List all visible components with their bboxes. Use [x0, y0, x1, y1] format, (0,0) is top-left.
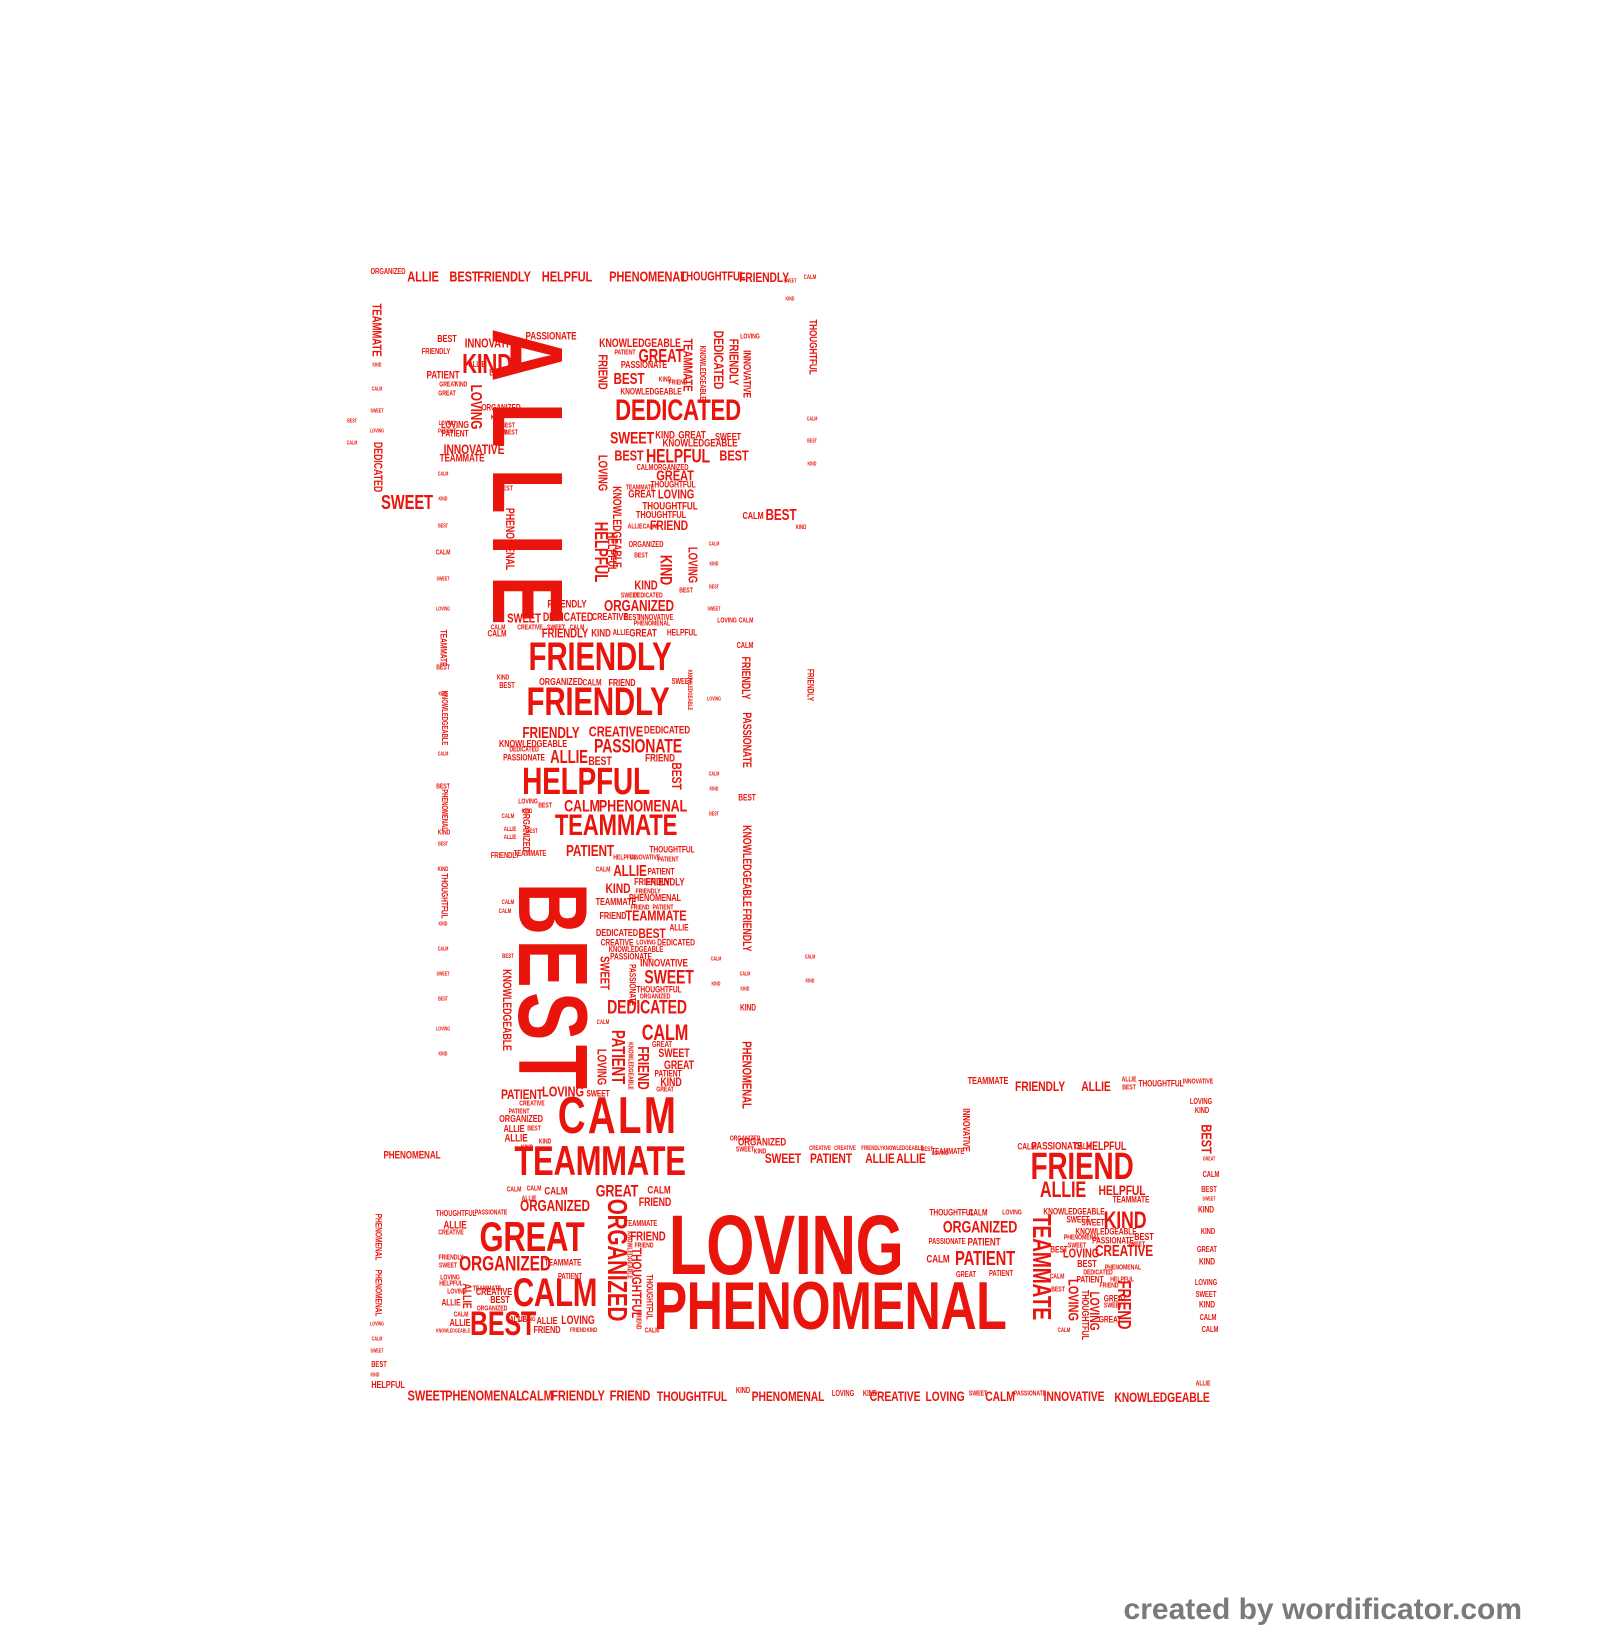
word: SWEET — [765, 1151, 801, 1165]
word: BEST — [679, 588, 693, 595]
word: ALLIE — [865, 1151, 894, 1165]
word: DEDICATED — [607, 999, 687, 1018]
word: INNOVATIVE — [630, 855, 660, 862]
word: KIND — [371, 1374, 380, 1379]
word: SWEET — [371, 1350, 384, 1355]
word: INNOVATIVE — [960, 1108, 970, 1151]
word: LOVING — [439, 421, 456, 427]
word: HELPFUL — [522, 763, 650, 801]
word: KIND — [1199, 1258, 1215, 1267]
word: THOUGHTFUL — [440, 873, 449, 918]
word: KIND — [741, 988, 750, 993]
word: FRIENDLY — [527, 682, 670, 722]
word: PATIENT — [810, 1151, 852, 1165]
word: SWEET — [708, 608, 721, 613]
word: CALM — [597, 1020, 610, 1026]
word: LOVING — [436, 608, 450, 613]
word: PATIENT — [438, 429, 456, 435]
word: GREAT — [1197, 1246, 1217, 1254]
word: CALM — [711, 958, 722, 963]
word: KIND — [808, 463, 817, 468]
word: BEST — [347, 420, 357, 425]
word: TEAMMATE — [545, 1259, 582, 1268]
word: THOUGHTFUL — [807, 319, 818, 374]
word: GREAT — [956, 1271, 976, 1279]
word: BEST — [449, 270, 478, 285]
word: TEAMMATE — [1029, 1214, 1055, 1320]
word: DEDICATED — [712, 331, 726, 390]
word: CREATIVE — [1095, 1244, 1153, 1260]
word: PHENOMENAL — [752, 1389, 825, 1403]
word: FRIEND — [597, 354, 610, 389]
word: KIND — [1195, 1107, 1209, 1115]
word: DEDICATED — [644, 726, 690, 737]
word: BEST — [504, 430, 518, 437]
word: BEST — [807, 440, 817, 445]
word: LOVING — [717, 618, 737, 625]
word: FRIEND — [570, 1328, 586, 1334]
word: ALLIE — [504, 835, 517, 841]
word: PASSIONATE — [741, 712, 753, 768]
word: HELPFUL — [606, 532, 618, 572]
word: FRIEND — [630, 1230, 665, 1243]
word: KIND — [373, 364, 382, 369]
word: LOVING — [1195, 1279, 1217, 1287]
word: PATIENT — [967, 1238, 1000, 1249]
word: BEST — [436, 665, 450, 672]
word: THOUGHTFUL — [657, 1389, 727, 1403]
word: ALLIE — [504, 827, 517, 833]
word: FRIEND — [635, 1243, 654, 1250]
word: BEST — [738, 794, 756, 803]
word: ALLIE — [670, 924, 689, 933]
word: CALM — [438, 753, 449, 758]
word: ALLIE — [1122, 1077, 1137, 1084]
word: LOVING — [1063, 1247, 1099, 1260]
word: KIND — [786, 298, 795, 303]
word: ALLIE — [628, 524, 643, 531]
word: THOUGHTFUL — [649, 846, 694, 855]
word: CALM — [521, 1389, 553, 1404]
word: PHENOMENAL — [654, 1272, 1007, 1340]
word: CREATIVE — [809, 1146, 831, 1152]
word: CALM — [1200, 1314, 1217, 1322]
word: KIND — [796, 525, 807, 531]
word: CALM — [737, 642, 754, 650]
word: DEDICATED — [543, 611, 593, 623]
word: FRIENDLY — [739, 270, 789, 284]
word: PATIENT — [647, 868, 674, 877]
word: FRIEND — [1115, 1281, 1133, 1330]
word: FRIENDLY — [806, 669, 815, 701]
word: DEDICATED — [372, 442, 384, 492]
word: FRIENDLY — [422, 348, 451, 356]
word: ORGANIZED — [371, 268, 406, 276]
word: KIND — [438, 830, 450, 837]
word: KNOWLEDGEABLE — [686, 670, 692, 711]
word: ALLIE — [442, 1299, 461, 1308]
word: CREATIVE — [592, 613, 628, 623]
word: KNOWLEDGEABLE — [883, 1146, 924, 1152]
word: FRIENDLY — [547, 600, 586, 611]
word: CALM — [502, 900, 515, 906]
word-art-canvas: ORGANIZEDALLIEBESTFRIENDLYHELPFULPHENOME… — [0, 0, 1600, 1640]
word: BEST — [1201, 1186, 1217, 1194]
word: KIND — [710, 563, 719, 568]
word: TEAMMATE — [514, 850, 547, 858]
word: ORGANIZED — [481, 404, 520, 413]
word: FRIENDLY — [740, 657, 752, 700]
word: CALM — [438, 473, 449, 478]
word: SWEET — [437, 578, 450, 583]
word: BEST — [538, 803, 552, 810]
word: FRIENDLY — [438, 1255, 463, 1262]
word: PASSIONATE — [1014, 1391, 1046, 1398]
word: CALM — [507, 1187, 522, 1194]
word: CREATIVE — [834, 1146, 856, 1152]
word: LOVING — [436, 1028, 450, 1033]
word: CALM — [527, 1186, 542, 1193]
word: PASSIONATE — [621, 361, 667, 371]
word: HELPFUL — [371, 1381, 405, 1391]
word: LOVING — [370, 1323, 384, 1328]
word: KNOWLEDGEABLE — [698, 346, 706, 400]
word: INNOVATIVE — [1044, 1389, 1105, 1403]
word: TEAMMATE — [555, 811, 677, 841]
word: BEST — [470, 1307, 536, 1341]
word: BEST — [1199, 1124, 1214, 1153]
word: TEAMMATE — [1113, 1196, 1150, 1205]
word: TEAMMATE — [514, 1140, 685, 1182]
word: FRIENDLY — [728, 339, 741, 385]
word: FRIENDLY — [477, 270, 531, 285]
word: KNOWLEDGEABLE — [440, 691, 448, 745]
word: BEST — [499, 682, 515, 690]
word: LOVING — [597, 455, 610, 491]
word: PHENOMENAL — [634, 621, 670, 628]
word: KIND — [439, 923, 448, 928]
word: BEST — [709, 586, 719, 591]
word: PATIENT — [989, 1270, 1013, 1278]
word: BEST — [1122, 1085, 1136, 1092]
word: ALLIE — [1040, 1179, 1086, 1201]
word: FRIENDLY — [645, 878, 684, 889]
word: FRIEND — [639, 1196, 672, 1208]
word: SWEET — [408, 1389, 447, 1404]
word: CALM — [804, 275, 817, 281]
word: HELPFUL — [542, 270, 592, 285]
word: CALM — [926, 1255, 949, 1266]
word: CREATIVE — [517, 625, 542, 632]
word: CALM — [969, 1209, 988, 1218]
word: PATIENT — [657, 857, 678, 864]
word: TEAMMATE — [968, 1077, 1009, 1087]
word: DEDICATED — [615, 396, 741, 426]
word: FRIENDLY — [551, 1389, 605, 1404]
word: CALM — [805, 956, 816, 961]
word: KNOWLEDGEABLE — [436, 1330, 470, 1335]
word: BEST — [438, 998, 448, 1003]
word: CREATIVE — [519, 1101, 544, 1108]
word: PHENOMENAL — [609, 270, 687, 285]
word: BEST — [719, 449, 748, 464]
word: BEST — [438, 843, 448, 848]
word: KIND — [658, 555, 675, 585]
word: LOVING — [658, 488, 694, 501]
word: BEST — [634, 553, 648, 560]
word: TEAMMATE — [440, 454, 485, 465]
word: LOVING — [519, 1317, 536, 1323]
word: GREAT — [596, 1183, 638, 1200]
word: CALM — [347, 442, 358, 447]
word: LOVING — [1190, 1098, 1212, 1106]
word: SWEET — [736, 1147, 754, 1154]
word: BEST — [504, 883, 602, 1094]
word: KIND — [439, 693, 448, 698]
word: KIND — [438, 867, 449, 873]
word: INNOVATIVE — [1183, 1079, 1213, 1086]
word: CALM — [637, 464, 654, 472]
word: CALM — [1202, 1326, 1219, 1334]
word: BEST — [527, 1126, 541, 1133]
word: FRIEND — [634, 1046, 650, 1089]
word: PATIENT — [614, 350, 635, 357]
word: PATIENT — [426, 371, 459, 382]
word: PHENOMENAL — [383, 1151, 440, 1162]
word: CREATIVE — [438, 1230, 463, 1237]
word: KIND — [491, 415, 503, 422]
word: CALM — [488, 630, 507, 639]
word: SWEET — [599, 956, 612, 990]
word: SWEET — [610, 430, 654, 447]
word: LOVING — [832, 1390, 854, 1398]
word: CREATIVE — [870, 1389, 921, 1403]
word: KIND — [1201, 1228, 1215, 1236]
word: CALM — [544, 1187, 567, 1198]
word: KIND — [1198, 1206, 1214, 1215]
word: CALM — [739, 618, 754, 625]
word: LOVING — [561, 1314, 595, 1326]
word: PATIENT — [609, 1030, 627, 1084]
word: BEST — [502, 954, 514, 960]
word: THOUGHTFUL — [680, 270, 745, 283]
word: BEST — [501, 423, 515, 430]
word: BEST — [765, 508, 796, 524]
word: BEST — [670, 762, 684, 789]
word: THOUGHTFUL — [1138, 1080, 1183, 1089]
word: SWEET — [1203, 1198, 1216, 1203]
word: TEAMMATE — [439, 630, 448, 667]
word: GREAT — [1203, 1158, 1215, 1163]
word: FRIENDLY — [1015, 1079, 1065, 1093]
word: SWEET — [381, 493, 433, 513]
word: FRIEND — [599, 912, 626, 922]
word: FRIEND — [533, 1326, 560, 1336]
word: PATIENT — [955, 1249, 1015, 1269]
word: CALM — [709, 773, 720, 778]
word: GREAT — [438, 391, 455, 398]
word: TEAMMATE — [625, 909, 686, 924]
word: LOVING — [518, 799, 538, 806]
word: PATIENT — [566, 844, 614, 860]
word: LOVING — [596, 1049, 609, 1085]
word: ALLIE — [449, 1319, 470, 1329]
word: KIND — [606, 881, 631, 895]
word: PHENOMENAL — [445, 1389, 523, 1404]
word: KIND — [710, 788, 719, 793]
word: CALM — [1058, 1328, 1071, 1334]
letter-l-word-cloud: ORGANIZEDALLIEBESTFRIENDLYHELPFULPHENOME… — [0, 0, 1600, 1640]
word: ALLIE — [1196, 1381, 1211, 1388]
word: CALM — [742, 512, 763, 522]
word: KNOWLEDGEABLE — [741, 825, 753, 907]
word: PHENOMENAL — [504, 508, 516, 570]
word: KIND — [740, 1004, 756, 1013]
word: BEST — [1077, 1260, 1096, 1270]
word: CALM — [740, 973, 751, 978]
word: DEDICATED — [509, 747, 538, 754]
word: FRIENDLY — [861, 1146, 882, 1152]
word: FRIENDLY — [741, 909, 753, 952]
word: BEST — [437, 335, 456, 345]
word: ALLIE — [896, 1151, 925, 1165]
word: CALM — [372, 1338, 383, 1343]
word: FRIEND — [650, 518, 688, 532]
word: CALM — [502, 814, 515, 820]
word: CALM — [499, 909, 512, 915]
word: KIND — [736, 1387, 750, 1395]
word: FRIEND — [669, 380, 688, 387]
word: SWEET — [507, 612, 541, 625]
word: LOVING — [687, 547, 700, 583]
word: TEAMMATE — [371, 303, 384, 356]
word: KIND — [634, 579, 657, 592]
word: THOUGHTFUL — [436, 1210, 476, 1218]
word: LOVING — [1088, 1291, 1102, 1330]
word: SWEET — [439, 1263, 457, 1270]
word: BEST — [526, 829, 538, 835]
word: KIND — [439, 1053, 448, 1058]
word: SWEET — [437, 973, 450, 978]
word: KIND — [1199, 1301, 1215, 1310]
word: KIND — [587, 1328, 598, 1334]
word: PHENOMENAL — [741, 1041, 754, 1108]
word: KNOWLEDGEABLE — [501, 969, 513, 1051]
word: CALM — [709, 543, 720, 548]
word: CALM — [436, 550, 451, 557]
word: ALLIE — [407, 270, 439, 285]
word: THOUGHTFUL — [645, 1274, 654, 1319]
word: CALM — [372, 388, 383, 393]
word: CALM — [583, 679, 602, 688]
word: KNOWLEDGEABLE — [1114, 1390, 1209, 1404]
word: CALM — [438, 948, 449, 953]
word: FRIEND — [635, 1311, 642, 1330]
word: PHENOMENAL — [440, 789, 448, 831]
word: ORGANIZED — [539, 678, 583, 688]
word: LOVING — [925, 1389, 964, 1403]
word: ORGANIZED — [730, 1136, 761, 1143]
word: INNOVATIVE — [741, 350, 752, 398]
word: LOVING — [932, 1151, 949, 1157]
word: ORGANIZED — [943, 1219, 1017, 1236]
word: TEAMMATE — [625, 1220, 658, 1228]
word: CALM — [558, 1090, 678, 1142]
word: GREAT — [628, 490, 655, 501]
watermark: created by wordificator.com — [1124, 1593, 1522, 1627]
word: ALLIE — [1081, 1079, 1110, 1093]
word: LOVING — [1002, 1210, 1022, 1217]
word: PHENOMENAL — [1105, 1265, 1141, 1272]
word: LOVING — [740, 334, 760, 341]
word: PHENOMENAL — [629, 894, 681, 904]
word: SWEET — [1196, 1291, 1217, 1299]
word: CALM — [1203, 1171, 1220, 1179]
word: PATIENT — [501, 1087, 543, 1101]
word: CALM — [596, 867, 611, 874]
word: ORGANIZED — [629, 541, 664, 549]
word: PASSIONATE — [928, 1238, 965, 1246]
word: SWEET — [784, 280, 797, 285]
word: BEST — [709, 813, 719, 818]
word: FRIEND — [608, 679, 635, 689]
word: FRIENDLY — [529, 637, 672, 677]
word: BEST — [499, 486, 513, 493]
word: BEST — [438, 525, 448, 530]
word: SWEET — [371, 410, 384, 415]
word: BEST — [371, 1361, 387, 1369]
word: KIND — [712, 983, 721, 988]
word: LOVING — [370, 430, 384, 435]
word: PHENOMENAL — [374, 1214, 383, 1261]
word: KIND — [455, 382, 467, 389]
word: BEST — [614, 449, 643, 464]
word: PHENOMENAL — [374, 1270, 383, 1317]
word: CALM — [985, 1389, 1015, 1403]
word: KIND — [806, 980, 815, 985]
word: LOVING — [707, 698, 721, 703]
word: KNOWLEDGEABLE — [627, 1042, 634, 1090]
word: KIND — [439, 498, 448, 503]
word: CALM — [807, 418, 818, 423]
word: FRIEND — [610, 1389, 651, 1404]
